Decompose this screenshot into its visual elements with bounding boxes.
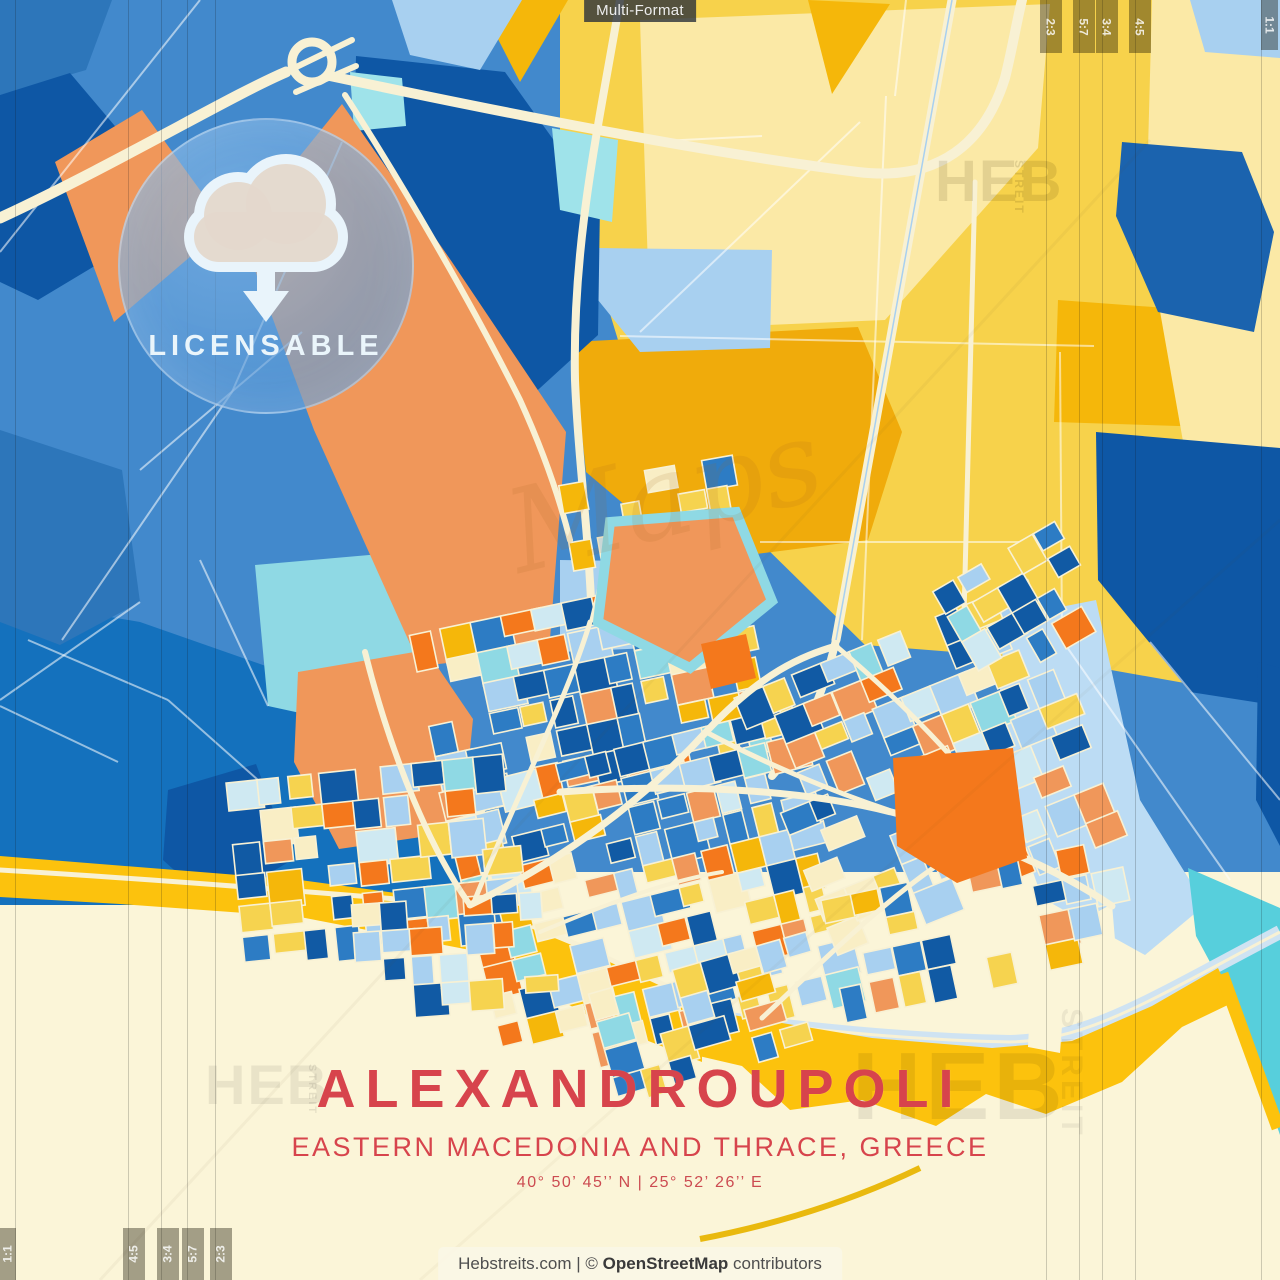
crop-mark-label: 4:5	[127, 1245, 141, 1262]
footer-source: OpenStreetMap	[603, 1254, 729, 1274]
license-badge-label: LICENSABLE	[120, 330, 412, 363]
crop-mark-label: 5:7	[186, 1245, 200, 1262]
crop-mark-3-4: 3:4	[1096, 0, 1118, 53]
crop-mark-label: 5:7	[1077, 18, 1091, 35]
footer-site: Hebstreits.com	[458, 1254, 571, 1274]
crop-mark-4-5: 4:5	[1129, 0, 1151, 53]
crop-mark-1-1: 1:1	[1261, 0, 1278, 50]
crop-mark-label: 3:4	[161, 1245, 175, 1262]
format-badge: Multi-Format	[584, 0, 696, 22]
crop-mark-label: 2:3	[214, 1245, 228, 1262]
crop-mark-2-3: 2:3	[1040, 0, 1062, 53]
crop-mark-label: 1:1	[1, 1245, 15, 1262]
crop-mark-3-4: 3:4	[157, 1228, 179, 1280]
download-arrow-icon	[236, 266, 296, 324]
footer-suffix: contributors	[728, 1254, 822, 1274]
crop-mark-2-3: 2:3	[210, 1228, 232, 1280]
license-badge: LICENSABLE	[118, 118, 414, 414]
cloud-download-icon	[166, 154, 366, 274]
crop-mark-1-1: 1:1	[0, 1228, 16, 1280]
footer-copyright: ©	[585, 1254, 602, 1274]
crop-mark-label: 4:5	[1133, 18, 1147, 35]
footer-attribution: Hebstreits.com | © OpenStreetMap contrib…	[438, 1247, 842, 1280]
crop-mark-label: 3:4	[1100, 18, 1114, 35]
footer-divider: |	[572, 1254, 586, 1274]
crop-mark-label: 1:1	[1263, 16, 1277, 33]
map-poster-preview: { "window": { "format_badge": "Multi-For…	[0, 0, 1280, 1280]
crop-mark-5-7: 5:7	[182, 1228, 204, 1280]
crop-mark-label: 2:3	[1044, 18, 1058, 35]
crop-mark-5-7: 5:7	[1073, 0, 1095, 53]
crop-mark-4-5: 4:5	[123, 1228, 145, 1280]
